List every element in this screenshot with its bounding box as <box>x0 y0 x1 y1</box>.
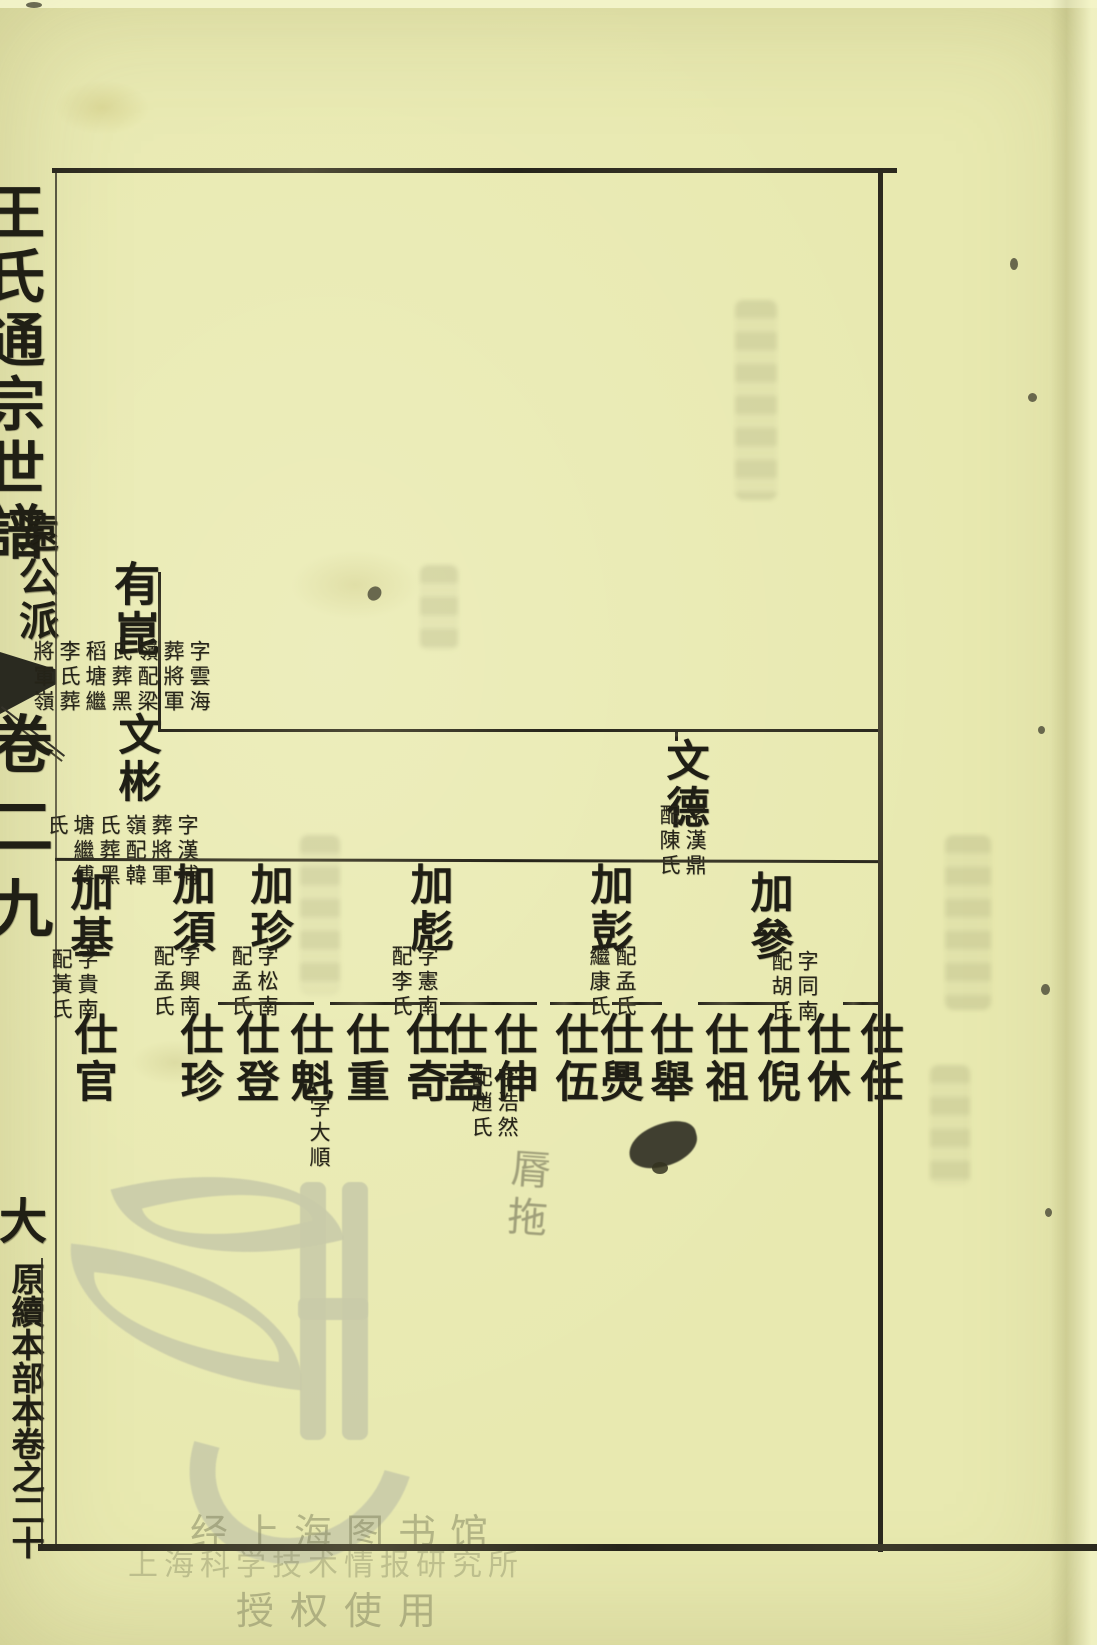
tree-bracket-gen4 <box>330 1002 429 1005</box>
tree-bracket-gen4 <box>550 1002 598 1005</box>
person-note: 字漢鼎配陳氏 <box>656 804 708 888</box>
bleedthrough-ghost <box>735 300 777 500</box>
tree-bracket-gen4 <box>218 1002 314 1005</box>
person-name: 仕祖 <box>691 1012 753 1106</box>
person-name: 仕任 <box>846 1012 908 1106</box>
person-name: 仕魁 <box>276 1012 338 1106</box>
watermark-logo-crossbar <box>298 1298 368 1320</box>
person-name: 仕珍 <box>166 1012 228 1106</box>
spine-title: 王氏通宗世譜 <box>0 182 52 566</box>
tree-tick-wende <box>675 731 678 741</box>
person-name: 仕登 <box>222 1012 284 1106</box>
person-name: 加彭 <box>576 862 638 956</box>
person-name: 仕重 <box>332 1012 394 1106</box>
tree-connector-gen1 <box>158 572 161 732</box>
person-note: 字大順 <box>306 1096 332 1180</box>
footer-column-border <box>41 1258 43 1550</box>
tree-bracket-gen4 <box>440 1002 537 1005</box>
person-name: 加須 <box>158 862 220 956</box>
bleedthrough-ghost <box>930 1065 970 1185</box>
outer-border-bottom <box>38 1544 1097 1551</box>
genealogy-scan-page: 王氏通宗世譜 遠公派 卷二九 大 原續本部本卷之二十 有崑 字雲海葬將軍嶺配梁氏… <box>0 0 1097 1645</box>
ink-speck <box>1041 984 1050 995</box>
person-name: 仕官 <box>60 1012 122 1106</box>
bleedthrough-ghost <box>420 565 458 650</box>
person-name: 仕伍 <box>541 1012 603 1106</box>
spine-footer-partial-char: 大 <box>0 1196 52 1244</box>
person-name: 文彬 <box>104 712 166 806</box>
outer-border-top <box>52 168 897 173</box>
tree-bracket-gen4 <box>843 1002 878 1005</box>
ink-smudge <box>652 1162 668 1174</box>
outer-border-right <box>878 168 883 1552</box>
paper-stain <box>290 550 420 620</box>
ink-speck <box>1028 393 1037 402</box>
person-name: 加彪 <box>396 862 458 956</box>
page-right-edge <box>1050 0 1097 1645</box>
tree-line-gen2 <box>158 729 878 732</box>
ink-speck <box>1038 726 1045 734</box>
tree-bracket-gen4 <box>698 1002 788 1005</box>
faint-annotation: 脣拖 <box>493 1146 558 1246</box>
ink-speck <box>26 2 42 8</box>
page-top-edge <box>0 0 1097 8</box>
paper-stain <box>55 80 150 135</box>
tree-bracket-gen4 <box>612 1002 662 1005</box>
ink-speck <box>1010 258 1018 270</box>
person-name: 仕奇 <box>392 1012 454 1106</box>
bleedthrough-ghost <box>945 835 991 1010</box>
ink-speck <box>1045 1208 1052 1217</box>
watermark-authorization-line: 授权使用 <box>236 1580 452 1635</box>
person-name: 加珍 <box>236 862 298 956</box>
